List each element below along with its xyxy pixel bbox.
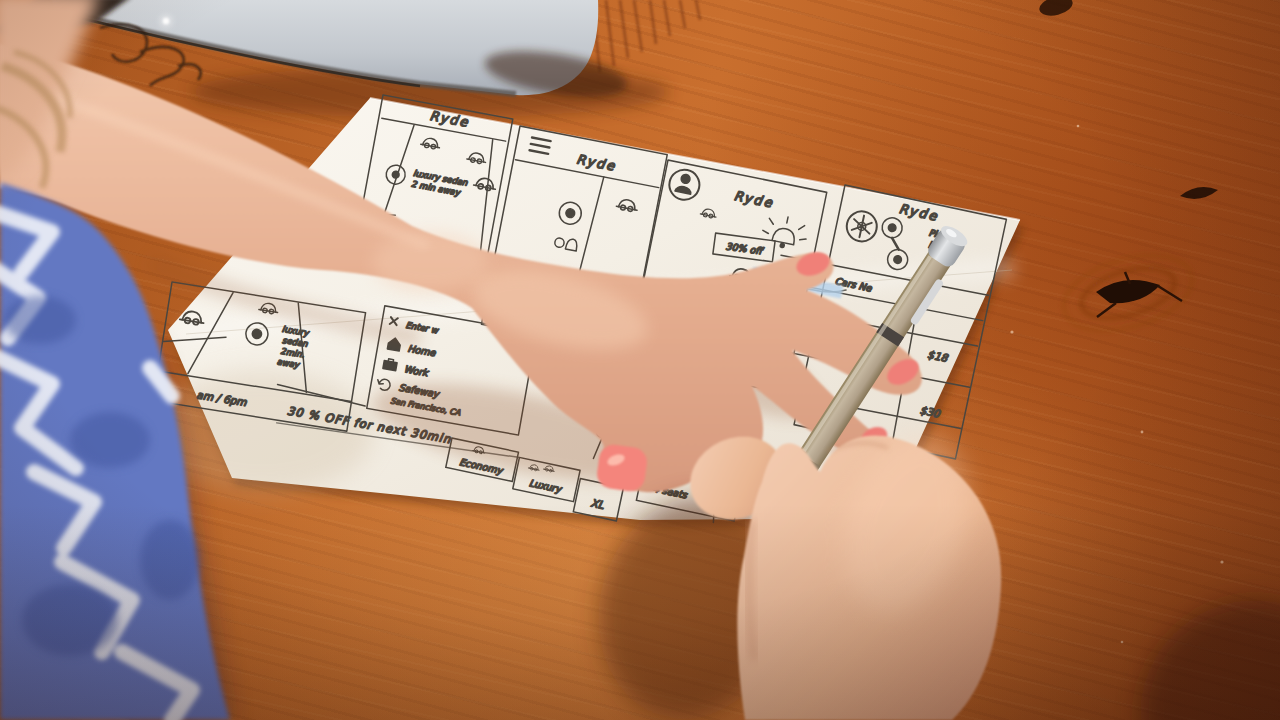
sleep-led	[163, 18, 169, 24]
thumb-nail	[595, 443, 649, 493]
wood-knot-slit	[1180, 187, 1218, 199]
wood-knot-large	[1055, 242, 1201, 344]
wood-knot-top	[1037, 0, 1074, 19]
wood-corner-shade	[1140, 600, 1280, 720]
photo-scene: Ryde luxury sedan 2 min away Ryde	[0, 0, 1280, 720]
wood-specks	[981, 125, 1224, 644]
scene-svg: Ryde luxury sedan 2 min away Ryde	[0, 0, 1280, 720]
wood-grain-streaks	[592, 0, 700, 72]
